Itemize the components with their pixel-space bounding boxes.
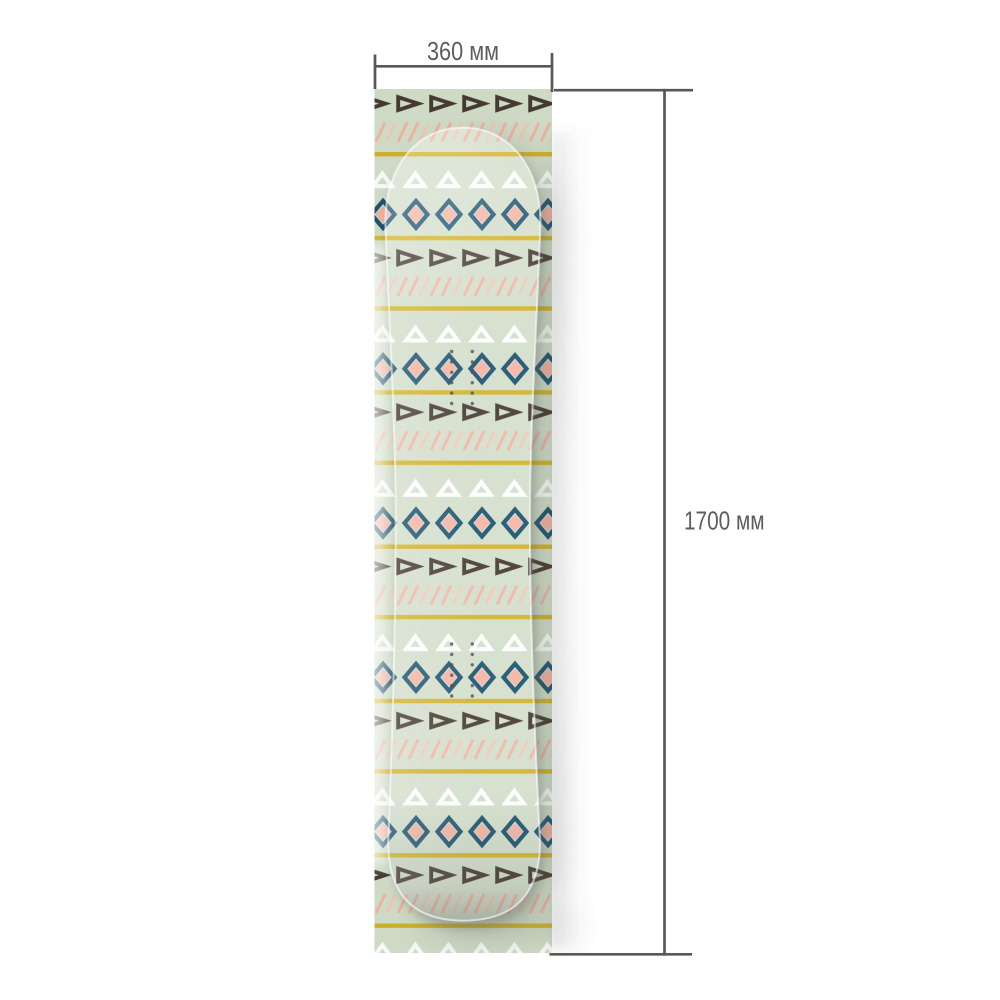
svg-text:1700 мм: 1700 мм — [684, 506, 765, 536]
svg-text:360 мм: 360 мм — [427, 36, 499, 66]
